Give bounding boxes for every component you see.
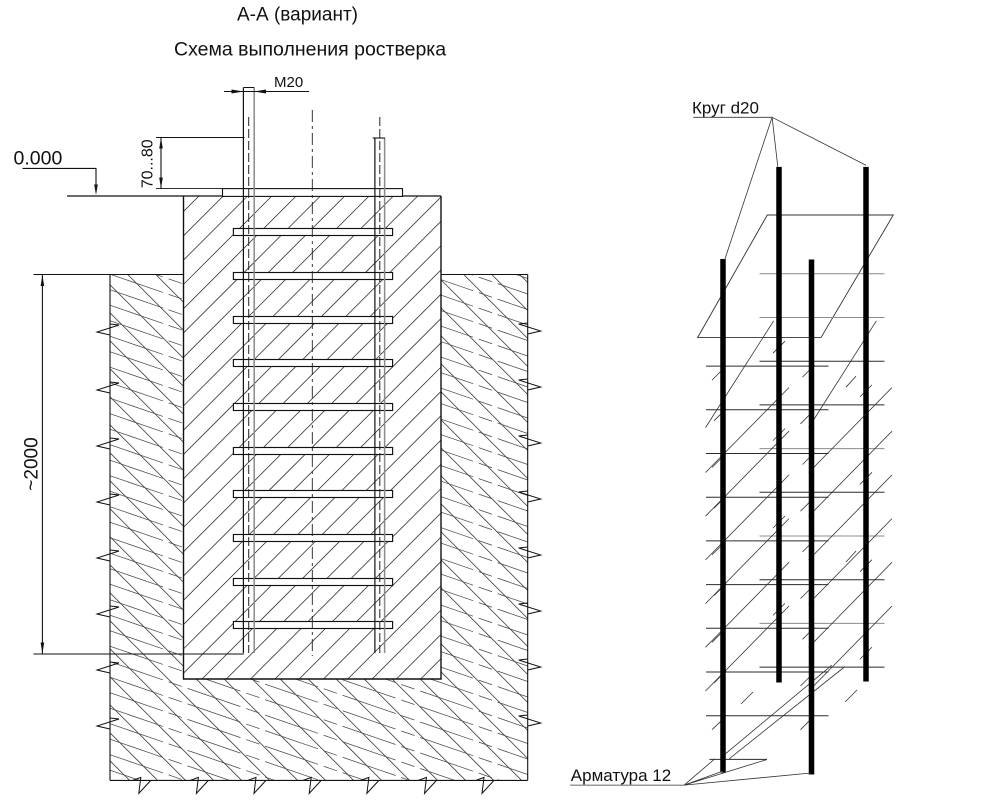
svg-text:Схема выполнения ростверка: Схема выполнения ростверка <box>174 39 446 61</box>
svg-text:Круг d20: Круг d20 <box>692 98 759 117</box>
svg-text:~2000: ~2000 <box>22 437 43 490</box>
svg-text:А-А (вариант): А-А (вариант) <box>237 5 358 26</box>
svg-text:Арматура 12: Арматура 12 <box>571 766 671 785</box>
svg-text:М20: М20 <box>274 74 303 91</box>
svg-text:70...80: 70...80 <box>140 139 157 188</box>
svg-text:0.000: 0.000 <box>14 148 63 170</box>
